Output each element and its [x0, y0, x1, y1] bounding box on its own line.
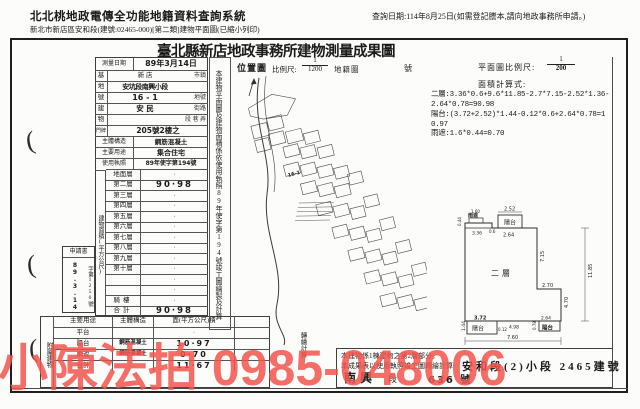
floor-row-label: 第四層	[106, 202, 141, 212]
floor-row: 第三層 ·	[106, 190, 208, 201]
scanned-document-page: 北北桃地政電傳全功能地籍資料查詢系統 新北市新店區安和段(建號:02465-00…	[0, 0, 640, 409]
query-date: 查詢日期:114年8月25日(如需登記謄本,請向地政事務所申請。)	[372, 11, 585, 22]
dim-label: 3.72	[474, 316, 487, 322]
structure-value: 鋼筋混凝土	[134, 139, 208, 146]
system-title: 北北桃地政電傳全功能地籍資料查詢系統	[30, 8, 246, 24]
floor-row-label: 第八層	[106, 244, 141, 254]
floor-row-label: 第六層	[106, 223, 141, 233]
balcony-label: 陽台	[504, 219, 516, 227]
floor-row: 第二層 90·98	[106, 180, 208, 191]
floor-row-label: 地面層	[106, 170, 141, 180]
site-row: 物 段 巷 弄	[95, 114, 208, 125]
scale-denominator: 200	[547, 65, 575, 73]
survey-date-label: 測量日期	[95, 57, 134, 70]
floor-row-value: ·	[141, 298, 208, 305]
parcel-cluster	[245, 76, 427, 339]
floor-row-value: ·	[141, 266, 208, 273]
floor-row-label: 第二層	[106, 181, 141, 191]
location-map-number-label: 號	[404, 63, 412, 74]
location-map-scale-label: 比例尺:	[272, 64, 297, 75]
floor-row-value: ·	[141, 214, 208, 221]
site-row-suffix: 地號	[182, 95, 208, 101]
floor-row-label: 第五層	[106, 212, 141, 222]
floor-row: 第八層 ·	[106, 243, 208, 254]
room-label: 二層	[491, 269, 513, 278]
floor-row: 騎樓 ·	[106, 295, 208, 306]
road-hatching	[291, 195, 338, 228]
floor-row-label: 第九層	[106, 254, 141, 264]
site-row: 建 安 民 街路	[95, 103, 208, 114]
floor-row: 第十層 ·	[106, 264, 208, 275]
site-row-label: 物	[95, 115, 108, 125]
floor-row: 第七層 ·	[106, 232, 208, 243]
floor-row-value: ·	[141, 287, 208, 294]
dim-label: 0.44	[457, 217, 462, 226]
floor-total-row: 合計 90·98	[106, 306, 208, 317]
license-value: 89年使字第194號	[134, 161, 208, 167]
floor-row-value: ·	[141, 193, 208, 200]
usage-row: 主要用途 集合住宅	[95, 147, 208, 158]
source-note-strip: 本建物平面圖及建物面積係依使用執照89年使字第194號竣工圖繪製及計算	[209, 57, 231, 330]
floor-row-label: 第三層	[106, 191, 141, 201]
site-row-label: 建	[95, 104, 108, 114]
floor-plan-drawing: 二層 陽台 陽台 陽台 雨遮 2.52 2.64 1.60 0.44 3.36 …	[427, 138, 615, 348]
floor-row-label	[106, 275, 141, 285]
floor-row-value: 90·98	[141, 181, 208, 190]
application-box: 申請書 89.3.14 字第1250號	[62, 246, 95, 313]
site-row-suffix: 街路	[182, 106, 208, 112]
site-row-label: 門牌	[95, 126, 108, 136]
floor-row-value: ·	[141, 277, 208, 284]
area-calc-line: 陽台:(3.72+2.52)*1.44-0.12*0.6+2.64*0.78=1…	[431, 110, 611, 130]
structure-row: 主體構造 鋼筋混凝土	[95, 136, 208, 147]
floor-row: 第五層 ·	[106, 211, 208, 222]
site-row: 基 新 店 市鎮	[95, 70, 208, 81]
floor-plan-scale-fraction: 1 200	[547, 56, 575, 72]
floor-row-value: ·	[141, 224, 208, 231]
site-row: 號 16 - 1 地號	[95, 92, 208, 103]
site-row-label: 地	[95, 82, 108, 92]
license-row: 使用執照 89年使字第194號	[95, 158, 208, 169]
site-row-suffix: 市鎮	[182, 73, 208, 79]
dim-label: 7.15	[540, 251, 546, 262]
dim-label: 4.70	[564, 297, 570, 308]
floor-row-value: ·	[141, 203, 208, 210]
dim-label: 2.70	[542, 283, 553, 289]
site-row-value: 安坑段南興小段	[108, 84, 182, 91]
auction-watermark: 小陳法拍 0985-048006	[0, 328, 640, 400]
cadastral-map-sketch: 16-1	[232, 76, 427, 346]
survey-date-value: 89年3月14日	[134, 60, 208, 68]
license-label: 使用執照	[95, 159, 134, 169]
dim-label: 3.36	[472, 231, 482, 237]
site-row-label: 基	[95, 71, 108, 81]
annex-header-structure: 主體構造	[113, 316, 154, 327]
dim-label: 0.6	[489, 229, 496, 234]
usage-label: 主要用途	[95, 148, 134, 158]
floor-total-label: 合計	[106, 307, 141, 317]
floor-row: ·	[106, 285, 208, 296]
floor-row-value: ·	[141, 172, 208, 179]
application-number: 字第1250號	[79, 258, 95, 313]
dim-label: 1.60	[471, 209, 480, 214]
floor-row-label: 第十層	[106, 265, 141, 275]
site-row-label: 號	[95, 93, 108, 103]
parcel-number-label: 16-1	[287, 170, 301, 179]
floor-row-value: ·	[141, 235, 208, 242]
floor-row: 第四層 ·	[106, 201, 208, 212]
site-row-value: 205號2樓之	[108, 127, 208, 135]
floor-row-label	[106, 286, 141, 296]
print-subtitle: 新北市新店區安和段(建號:02465-000)[第二類]建物平面圖(已縮小列印)	[30, 24, 260, 35]
site-row: 地 安坑段南興小段	[95, 81, 208, 92]
survey-date-row: 測量日期 89年3月14日	[95, 57, 208, 70]
location-map-title: 位置圖	[237, 61, 267, 74]
site-row-value: 新 店	[108, 73, 182, 80]
floor-row-label: 第七層	[106, 233, 141, 243]
site-row-suffix: 段 巷 弄	[146, 117, 208, 123]
site-row-value: 16 - 1	[108, 94, 182, 102]
north-arrow	[249, 79, 256, 96]
floor-row: 第九層 ·	[106, 253, 208, 264]
annex-header-usage: 主要用途	[54, 316, 113, 327]
floor-row-value: ·	[141, 245, 208, 252]
floor-row-label: 騎樓	[106, 296, 141, 306]
floor-area-section-label: 建物面積(平方公尺)	[95, 170, 106, 315]
floor-row: ·	[106, 274, 208, 285]
site-row-value: 安 民	[108, 105, 182, 113]
floor-plan-scale-label: 平面圖比例尺:	[478, 62, 535, 73]
floor-row: 地面層 ·	[106, 169, 208, 180]
dim-label: 11.85	[588, 264, 594, 278]
usage-value: 集合住宅	[134, 150, 208, 157]
floor-row-value: ·	[141, 256, 208, 263]
area-calc-line: 二層:3.36*0.6+9.6*11.85-2.7*7.15-2.52*1.36…	[431, 90, 611, 110]
site-row: 門牌 205號2樓之	[95, 125, 208, 136]
dim-label: 2.52	[504, 207, 515, 213]
floor-row: 第六層 ·	[106, 222, 208, 233]
application-date: 89.3.14	[63, 258, 79, 313]
structure-label: 主體構造	[95, 137, 134, 147]
scale-denominator: 1200	[302, 66, 328, 74]
dim-label: 2.64	[541, 316, 551, 322]
area-calc-title: 面積計算式:	[478, 79, 526, 90]
application-title: 申請書	[63, 247, 94, 258]
location-map-type: 地籍圖	[334, 64, 360, 75]
location-map-scale-fraction: 1 1200	[302, 57, 328, 73]
dim-label: 2.64	[503, 233, 514, 239]
floor-total-value: 90·98	[141, 307, 208, 316]
